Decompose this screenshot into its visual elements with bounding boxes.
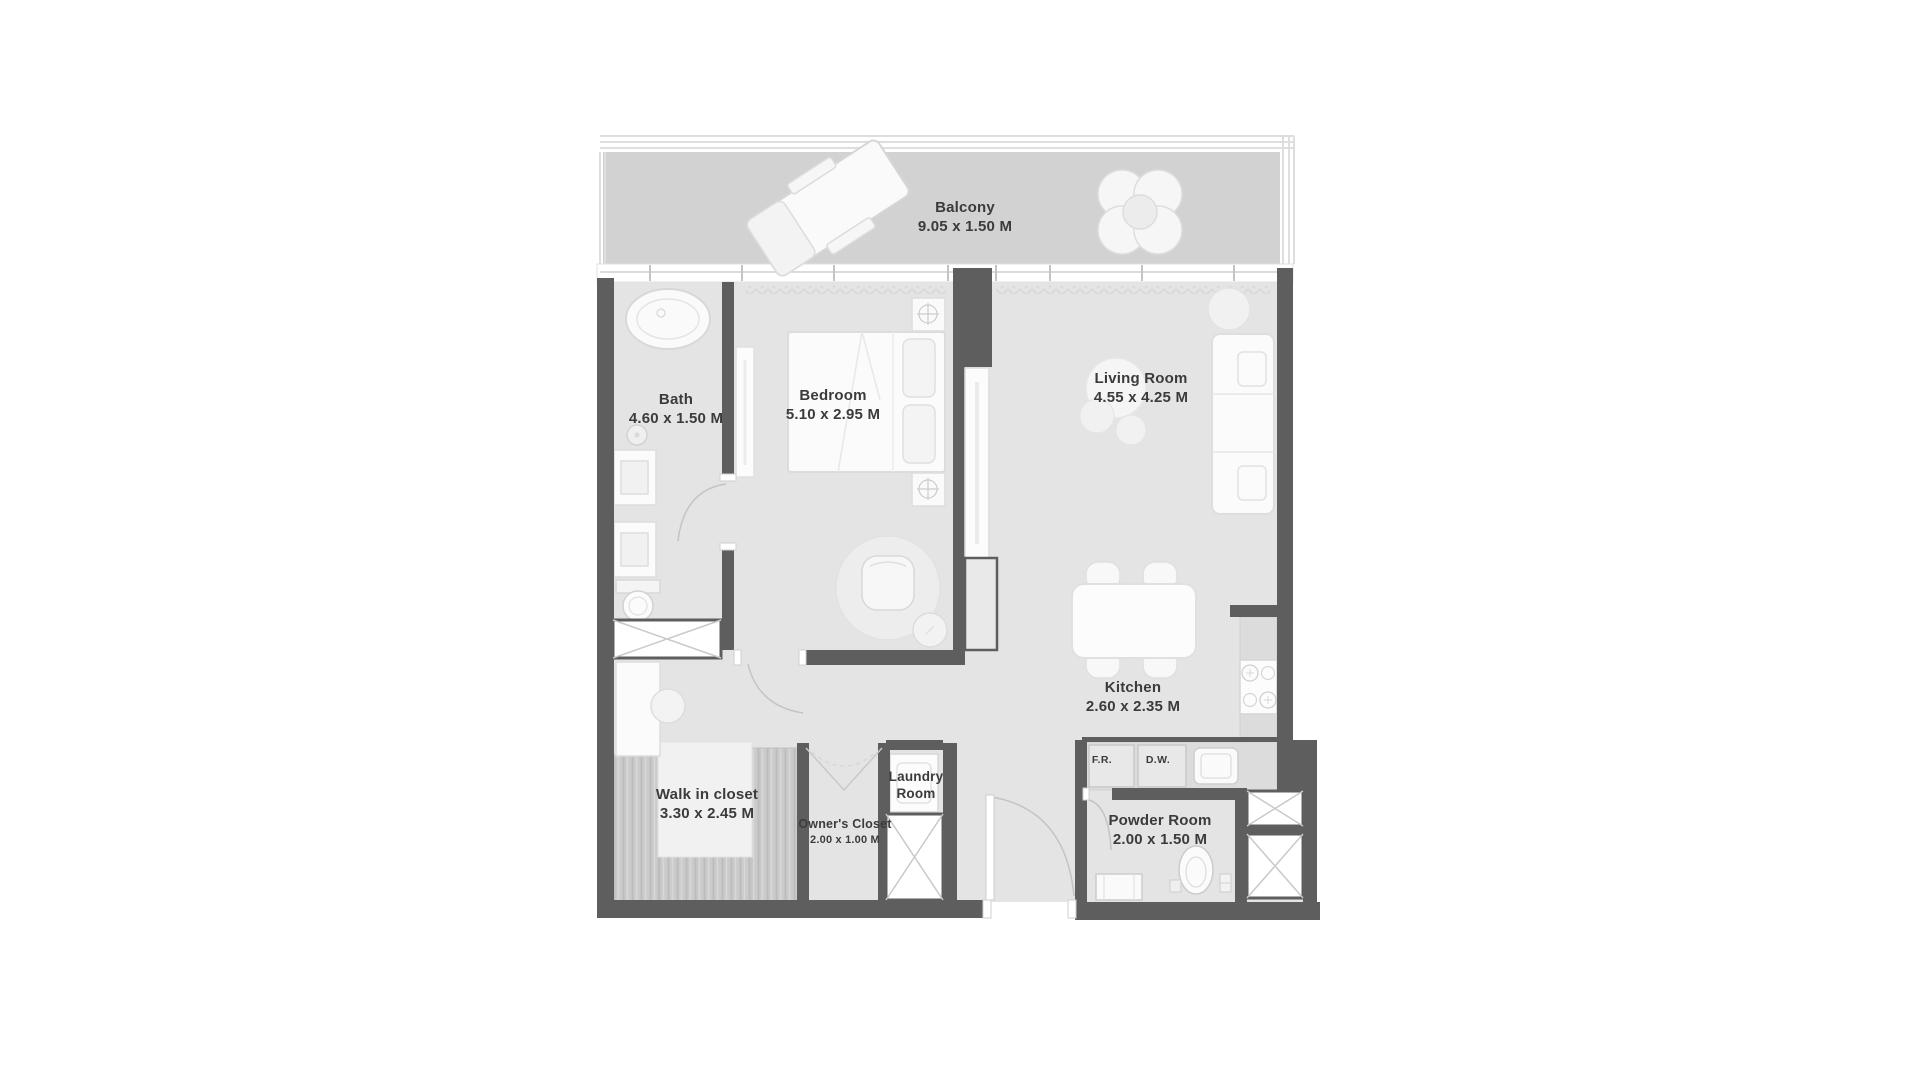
room-name: Living Room	[1094, 369, 1188, 388]
room-name: Walk in closet	[656, 785, 758, 804]
counter-edge	[1082, 737, 1277, 742]
room-dims: 4.55 x 4.25 M	[1094, 388, 1188, 407]
kitchen-sink	[1194, 748, 1238, 784]
balcony-plant-table	[1098, 170, 1182, 254]
wall-left	[597, 278, 614, 918]
room-dims: 2.00 x 1.50 M	[1108, 830, 1211, 849]
floor-plan-drawing	[0, 0, 1920, 1080]
sliding-door-panel	[965, 368, 989, 558]
wall-bath-right-a	[722, 282, 734, 480]
appliance-abbrev: F.R.	[1092, 754, 1112, 767]
room-dims: 2.60 x 2.35 M	[1086, 697, 1180, 716]
room-dims: 2.00 x 1.00 M	[798, 832, 891, 848]
room-label-bath: Bath 4.60 x 1.50 M	[629, 390, 723, 428]
powder-vanity	[1096, 874, 1142, 900]
entry-door-leaf	[986, 795, 994, 900]
wall-powder-top	[1112, 788, 1240, 800]
nightstand-bottom	[912, 473, 945, 506]
bedroom-curtain	[746, 286, 946, 294]
nightstand-top	[912, 298, 945, 331]
appliance-abbrev: D.W.	[1146, 754, 1170, 767]
appliance-label-fridge: F.R.	[1092, 754, 1112, 767]
room-name: Bath	[629, 390, 723, 409]
room-dims: 5.10 x 2.95 M	[786, 405, 880, 424]
wall-laundry-top	[886, 740, 943, 750]
bathtub	[626, 289, 710, 349]
hall-cabinet	[965, 558, 997, 650]
wall-right	[1277, 268, 1293, 742]
room-name: Powder Room	[1108, 811, 1211, 830]
room-name: Balcony	[918, 198, 1012, 217]
wall-bedroom-bottom	[805, 650, 953, 665]
room-dims: 9.05 x 1.50 M	[918, 217, 1012, 236]
room-label-walk-in-closet: Walk in closet 3.30 x 2.45 M	[656, 785, 758, 823]
sofa	[1212, 334, 1274, 514]
wall-mid-spine	[953, 268, 965, 665]
wall-bath-right-b	[722, 545, 734, 650]
floor-plan: Balcony 9.05 x 1.50 M Bath 4.60 x 1.50 M…	[0, 0, 1920, 1080]
room-name: Owner's Closet	[798, 816, 891, 832]
room-label-living-room: Living Room 4.55 x 4.25 M	[1094, 369, 1188, 407]
wall-bottom-left	[597, 900, 990, 918]
room-label-bedroom: Bedroom 5.10 x 2.95 M	[786, 386, 880, 424]
window-band	[597, 264, 1293, 282]
wall-kitchen-divider	[1230, 605, 1277, 617]
wall-laundry-right	[943, 743, 957, 902]
wall-shaft-divider	[1235, 788, 1247, 920]
room-name: Bedroom	[786, 386, 880, 405]
shaft-powder-top	[1247, 791, 1303, 826]
room-label-owners-closet: Owner's Closet 2.00 x 1.00 M	[798, 816, 891, 848]
room-label-laundry-room: Laundry Room	[889, 768, 944, 802]
room-dims: 4.60 x 1.50 M	[629, 409, 723, 428]
room-name: Kitchen	[1086, 678, 1180, 697]
room-name-line1: Laundry	[889, 768, 944, 785]
room-dims: 3.30 x 2.45 M	[656, 804, 758, 823]
appliance-label-dishwasher: D.W.	[1146, 754, 1170, 767]
room-name-line2: Room	[889, 785, 944, 802]
shaft-bath	[613, 620, 721, 658]
wall-powder-right	[1303, 788, 1317, 920]
shower-drain	[627, 425, 647, 445]
wall-right-block	[1277, 740, 1317, 790]
stove	[1240, 660, 1277, 714]
room-label-kitchen: Kitchen 2.60 x 2.35 M	[1086, 678, 1180, 716]
shaft-powder-bottom	[1247, 834, 1303, 898]
living-plant	[1208, 288, 1250, 330]
wall-bottom-right	[1075, 902, 1320, 920]
shaft-laundry	[886, 814, 943, 900]
room-label-balcony: Balcony 9.05 x 1.50 M	[918, 198, 1012, 236]
wall-entry-divider	[1075, 740, 1087, 905]
dining-table	[1072, 584, 1196, 658]
room-label-powder-room: Powder Room 2.00 x 1.50 M	[1108, 811, 1211, 849]
